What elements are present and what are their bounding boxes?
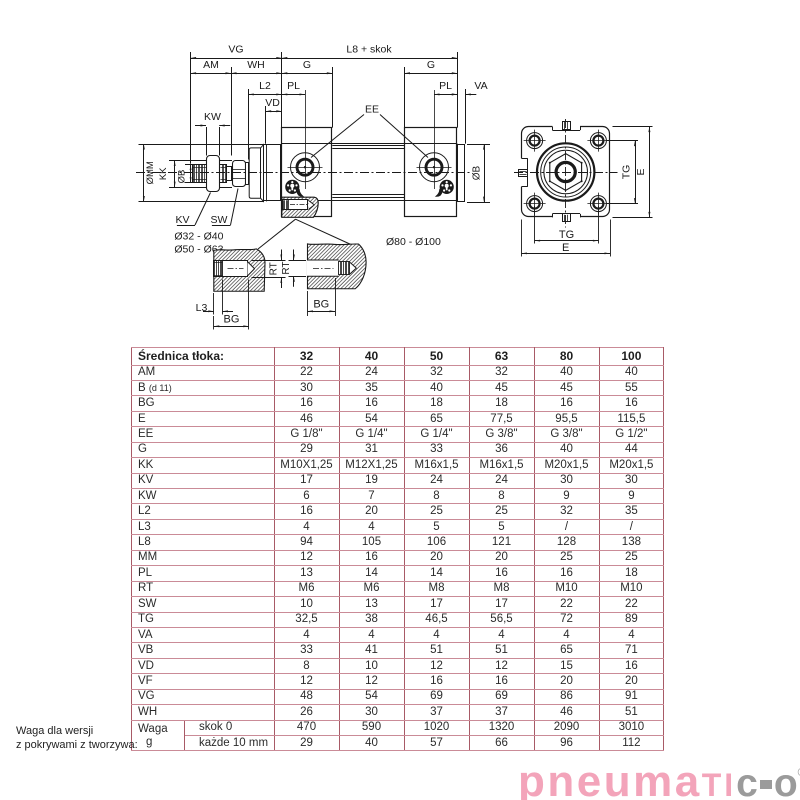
svg-text:TG: TG [559,229,574,241]
svg-text:L8 + skok: L8 + skok [346,44,392,56]
svg-text:WH: WH [247,59,265,71]
svg-text:L2: L2 [259,80,271,92]
svg-text:VD: VD [265,97,280,109]
svg-text:E: E [635,168,647,175]
svg-text:G: G [303,59,311,71]
svg-text:AM: AM [203,59,219,71]
svg-text:PL: PL [287,80,300,92]
svg-text:Ø32 - Ø40: Ø32 - Ø40 [174,230,223,242]
svg-text:KW: KW [204,111,221,123]
svg-text:EE: EE [365,104,379,116]
svg-text:VA: VA [474,80,487,92]
svg-text:L3: L3 [196,302,208,314]
svg-text:RT: RT [281,262,292,275]
svg-text:VG: VG [228,44,243,56]
svg-text:E: E [562,242,569,254]
svg-text:ØB: ØB [472,165,483,180]
svg-text:KK: KK [158,167,169,180]
svg-text:RT: RT [268,262,279,275]
svg-text:TG: TG [621,165,633,180]
svg-text:SW: SW [211,214,228,226]
svg-text:KV: KV [175,214,189,226]
svg-text:G: G [427,59,435,71]
svg-text:BG: BG [224,313,240,325]
svg-text:Ø80 - Ø100: Ø80 - Ø100 [386,236,441,248]
svg-text:BG: BG [313,298,329,310]
svg-text:ØB: ØB [176,170,187,184]
svg-text:PL: PL [439,80,452,92]
